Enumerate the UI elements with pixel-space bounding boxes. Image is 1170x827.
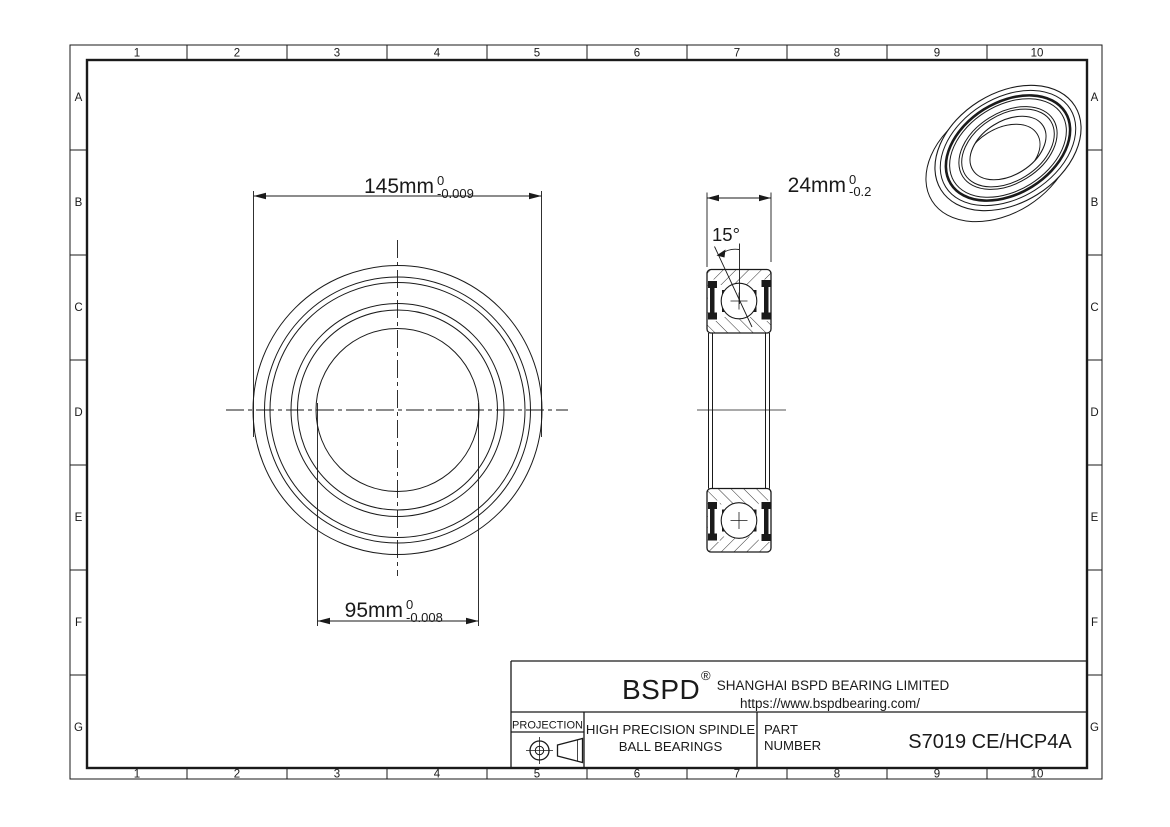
grid-col-label: 2 bbox=[234, 769, 240, 781]
grid-col-label: 6 bbox=[634, 769, 640, 781]
grid-row-label: F bbox=[1091, 617, 1098, 629]
registered-trademark-icon: ® bbox=[701, 668, 711, 683]
grid-row-label: C bbox=[74, 302, 82, 314]
grid-row-label: B bbox=[1091, 197, 1099, 209]
part-number-value: S7019 CE/HCP4A bbox=[908, 731, 1072, 753]
grid-row-label: E bbox=[75, 512, 83, 524]
dimension-width: 24mm 0 -0.2 bbox=[707, 172, 871, 267]
grid-col-label: 7 bbox=[734, 769, 740, 781]
grid-col-label: 8 bbox=[834, 769, 840, 781]
product-name-line1: HIGH PRECISION SPINDLE bbox=[586, 722, 755, 737]
grid-col-label: 9 bbox=[934, 48, 940, 60]
dim-od-tol-lower: -0.009 bbox=[437, 186, 474, 201]
grid-col-label: 7 bbox=[734, 48, 740, 60]
grid-col-label: 6 bbox=[634, 48, 640, 60]
projection-angle-icon bbox=[526, 737, 583, 764]
grid-col-label: 10 bbox=[1031, 48, 1044, 60]
grid-col-label: 1 bbox=[134, 48, 140, 60]
grid-col-label: 8 bbox=[834, 48, 840, 60]
grid-col-label: 4 bbox=[434, 48, 441, 60]
grid-row-label: A bbox=[75, 92, 83, 104]
grid-row-label: G bbox=[1090, 722, 1099, 734]
section-top-block bbox=[707, 270, 771, 334]
grid-row-label: A bbox=[1091, 92, 1099, 104]
grid-col-label: 10 bbox=[1031, 769, 1044, 781]
section-view: 24mm 0 -0.2 15° bbox=[697, 172, 871, 552]
iso-view bbox=[903, 59, 1104, 247]
dim-bore-tol-lower: -0.008 bbox=[406, 610, 443, 625]
grid-col-label: 3 bbox=[334, 48, 340, 60]
section-bore bbox=[709, 333, 770, 489]
dim-bore-value: 95mm bbox=[345, 599, 403, 622]
drawing-sheet: 1 2 3 4 5 6 7 8 9 10 1 2 3 4 5 6 7 8 9 1… bbox=[0, 0, 1170, 827]
dimension-bore-diameter: 95mm 0 -0.008 bbox=[318, 403, 479, 626]
grid-row-label: F bbox=[75, 617, 82, 629]
drawing-canvas: 1 2 3 4 5 6 7 8 9 10 1 2 3 4 5 6 7 8 9 1… bbox=[0, 0, 1170, 827]
part-number-label-line1: PART bbox=[764, 722, 798, 737]
grid-col-label: 5 bbox=[534, 769, 540, 781]
company-name: SHANGHAI BSPD BEARING LIMITED bbox=[717, 678, 950, 693]
grid-col-label: 4 bbox=[434, 769, 441, 781]
company-website: https://www.bspdbearing.com/ bbox=[740, 696, 920, 711]
grid-column-dividers bbox=[187, 45, 987, 779]
grid-row-label: C bbox=[1090, 302, 1098, 314]
grid-row-label: G bbox=[74, 722, 83, 734]
grid-col-label: 2 bbox=[234, 48, 240, 60]
grid-row-label: D bbox=[74, 407, 82, 419]
grid-row-label: E bbox=[1091, 512, 1099, 524]
front-view: 145mm 0 -0.009 95mm 0 -0.008 bbox=[226, 173, 568, 626]
section-bottom-block bbox=[707, 489, 771, 553]
grid-col-label: 9 bbox=[934, 769, 940, 781]
dim-width-value: 24mm bbox=[788, 174, 846, 197]
projection-label: PROJECTION bbox=[512, 720, 583, 732]
company-logo: BSPD bbox=[622, 674, 700, 705]
grid-row-label: B bbox=[75, 197, 83, 209]
grid-col-label: 3 bbox=[334, 769, 340, 781]
grid-row-dividers bbox=[70, 150, 1102, 675]
dim-angle-value: 15° bbox=[712, 224, 740, 245]
grid-col-label: 5 bbox=[534, 48, 540, 60]
grid-col-label: 1 bbox=[134, 769, 140, 781]
product-name-line2: BALL BEARINGS bbox=[619, 739, 723, 754]
title-block: BSPD ® SHANGHAI BSPD BEARING LIMITED htt… bbox=[511, 661, 1087, 768]
grid-row-label: D bbox=[1090, 407, 1098, 419]
dim-width-tol-lower: -0.2 bbox=[849, 184, 871, 199]
dim-od-value: 145mm bbox=[364, 175, 434, 198]
part-number-label-line2: NUMBER bbox=[764, 738, 821, 753]
